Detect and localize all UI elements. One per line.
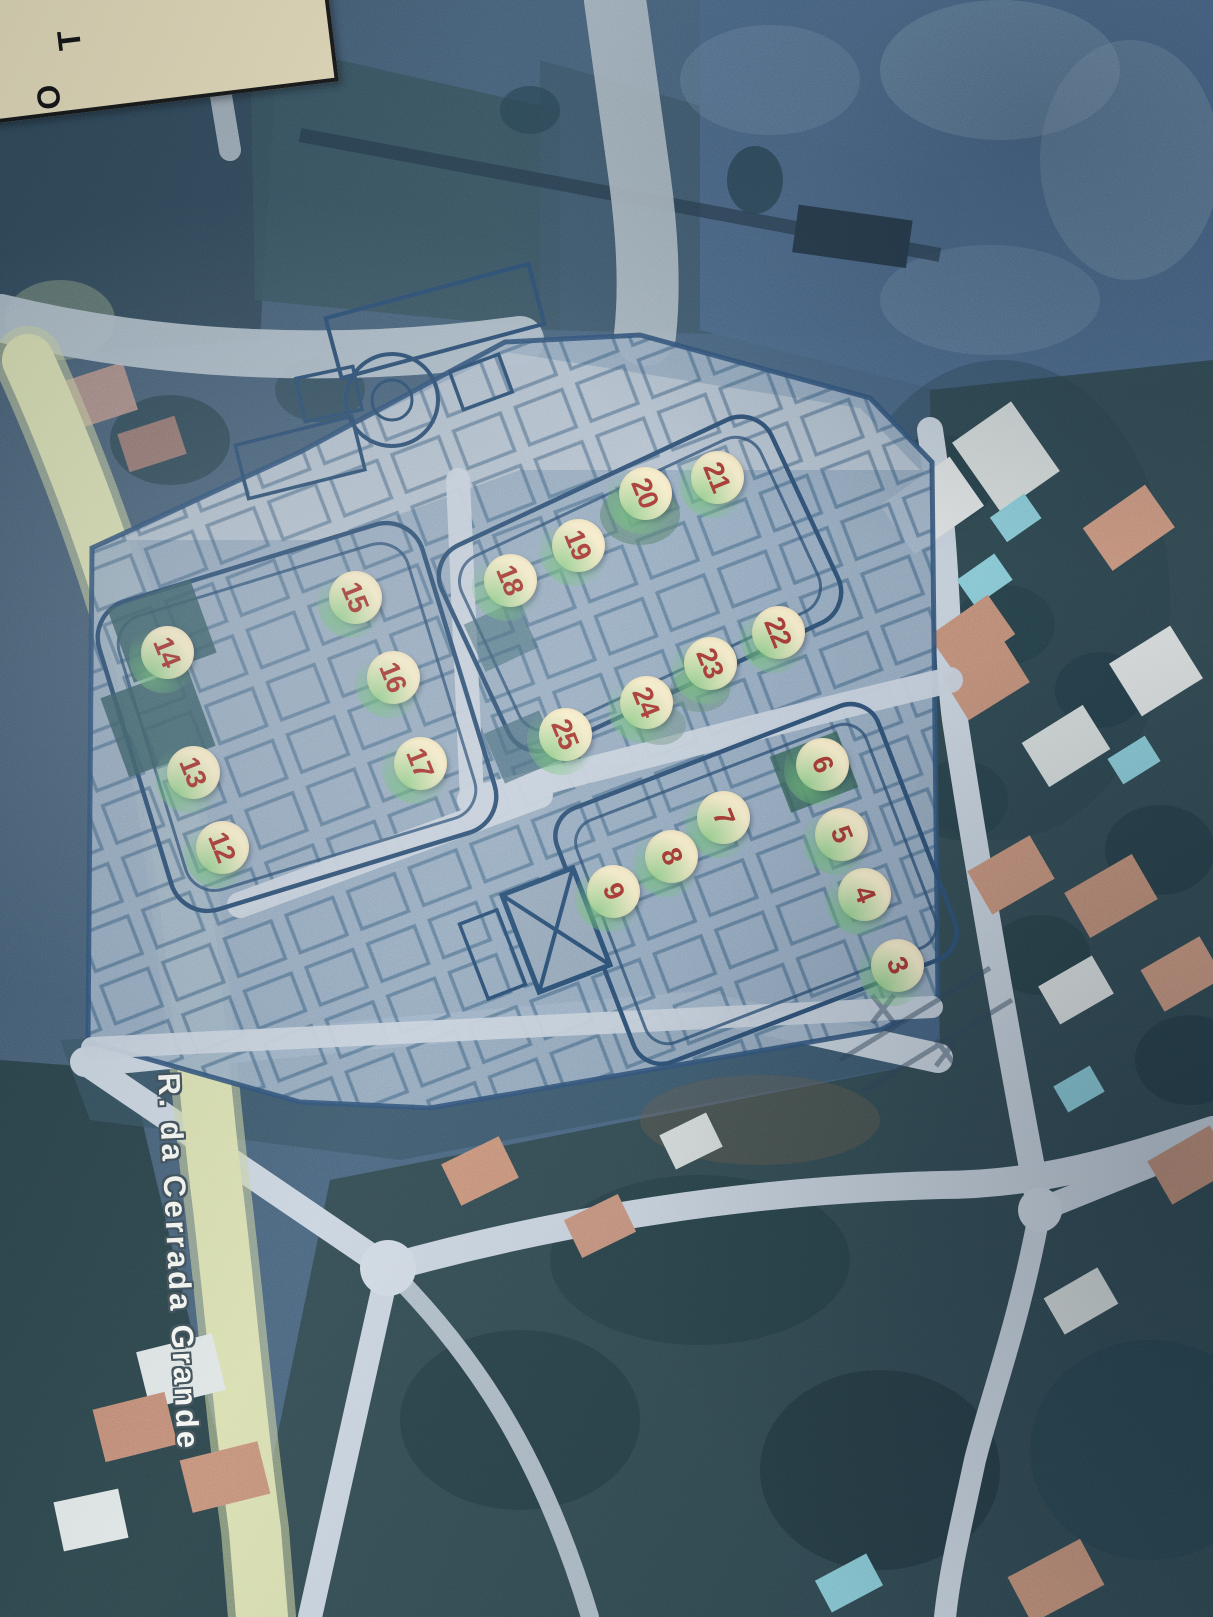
aerial-map-photo: 21201918152214231624256171375128943 R. d… (0, 0, 1213, 1617)
lot-marker-9: 9 (587, 865, 640, 918)
lot-marker-25: 25 (539, 708, 592, 761)
lot-marker-13: 13 (167, 746, 220, 799)
lot-marker-16: 16 (367, 651, 420, 704)
title-block-letter-o: O (29, 83, 69, 112)
lot-number: 16 (373, 657, 414, 696)
lot-number: 19 (558, 525, 599, 564)
lot-marker-20: 20 (619, 467, 672, 520)
lot-marker-21: 21 (691, 451, 744, 504)
title-block-letter-t: T (50, 28, 89, 52)
lot-number: 13 (173, 752, 214, 791)
lot-marker-14: 14 (141, 626, 194, 679)
lot-number: 18 (490, 560, 531, 599)
lot-marker-6: 6 (796, 738, 849, 791)
lot-marker-15: 15 (329, 571, 382, 624)
lot-number: 21 (697, 457, 738, 496)
lot-number: 6 (804, 751, 839, 777)
lot-marker-12: 12 (196, 821, 249, 874)
lot-number: 23 (690, 643, 731, 682)
lot-number: 4 (846, 881, 881, 907)
lot-marker-22: 22 (752, 606, 805, 659)
lot-marker-24: 24 (620, 676, 673, 729)
lot-number: 20 (625, 473, 666, 512)
lot-marker-19: 19 (552, 519, 605, 572)
lot-number: 24 (626, 682, 667, 721)
lot-number: 12 (202, 827, 243, 866)
lot-marker-8: 8 (645, 830, 698, 883)
lot-number: 3 (879, 952, 914, 978)
lot-marker-23: 23 (684, 637, 737, 690)
lot-number: 25 (545, 714, 586, 753)
lot-marker-17: 17 (394, 737, 447, 790)
lot-number: 7 (705, 804, 740, 830)
lot-number: 9 (595, 878, 630, 904)
lot-number: 8 (653, 843, 688, 869)
lot-number: 22 (758, 612, 799, 651)
lot-marker-3: 3 (871, 939, 924, 992)
lot-number: 5 (823, 821, 858, 847)
lot-marker-5: 5 (815, 808, 868, 861)
lot-marker-4: 4 (838, 868, 891, 921)
lot-marker-18: 18 (484, 554, 537, 607)
lot-number: 17 (400, 743, 441, 782)
lot-marker-7: 7 (697, 791, 750, 844)
lot-number: 14 (147, 632, 188, 671)
lot-number: 15 (335, 577, 376, 616)
